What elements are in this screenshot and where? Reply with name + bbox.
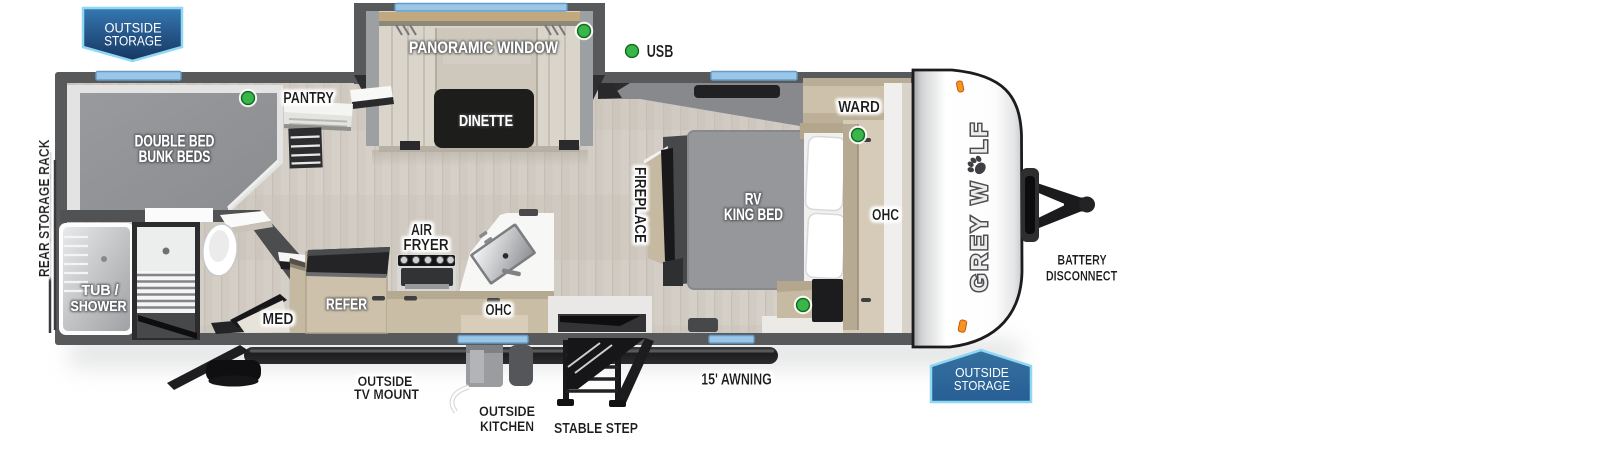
svg-text:PANORAMIC WINDOW: PANORAMIC WINDOW [409, 39, 558, 57]
svg-text:REFER: REFER [326, 295, 367, 313]
svg-text:STORAGE: STORAGE [104, 33, 162, 49]
svg-text:TUB /: TUB / [81, 283, 118, 299]
svg-text:KITCHEN: KITCHEN [480, 418, 534, 434]
svg-text:DINETTE: DINETTE [459, 113, 513, 131]
svg-text:KING BED: KING BED [724, 206, 783, 224]
svg-text:REAR STORAGE RACK: REAR STORAGE RACK [36, 139, 52, 277]
svg-text:AIR: AIR [411, 221, 432, 239]
svg-text:BATTERY: BATTERY [1057, 252, 1106, 268]
svg-text:FIREPLACE: FIREPLACE [631, 167, 648, 243]
svg-text:OHC: OHC [872, 206, 899, 224]
svg-text:USB: USB [647, 42, 674, 62]
svg-text:LF: LF [966, 120, 992, 154]
svg-text:TV MOUNT: TV MOUNT [354, 386, 419, 402]
svg-text:15' AWNING: 15' AWNING [701, 370, 772, 388]
svg-text:BUNK BEDS: BUNK BEDS [139, 148, 211, 166]
svg-text:MED: MED [263, 311, 294, 328]
svg-text:STORAGE: STORAGE [954, 378, 1010, 393]
svg-text:PANTRY: PANTRY [283, 90, 334, 108]
svg-text:FRYER: FRYER [403, 237, 449, 254]
svg-text:GREY W: GREY W [966, 179, 992, 292]
svg-text:OHC: OHC [485, 301, 511, 318]
svg-text:STABLE STEP: STABLE STEP [554, 420, 638, 436]
svg-text:SHOWER: SHOWER [71, 298, 127, 314]
svg-text:OUTSIDE: OUTSIDE [479, 403, 535, 419]
svg-text:WARD: WARD [838, 99, 880, 116]
svg-text:DISCONNECT: DISCONNECT [1046, 268, 1118, 283]
